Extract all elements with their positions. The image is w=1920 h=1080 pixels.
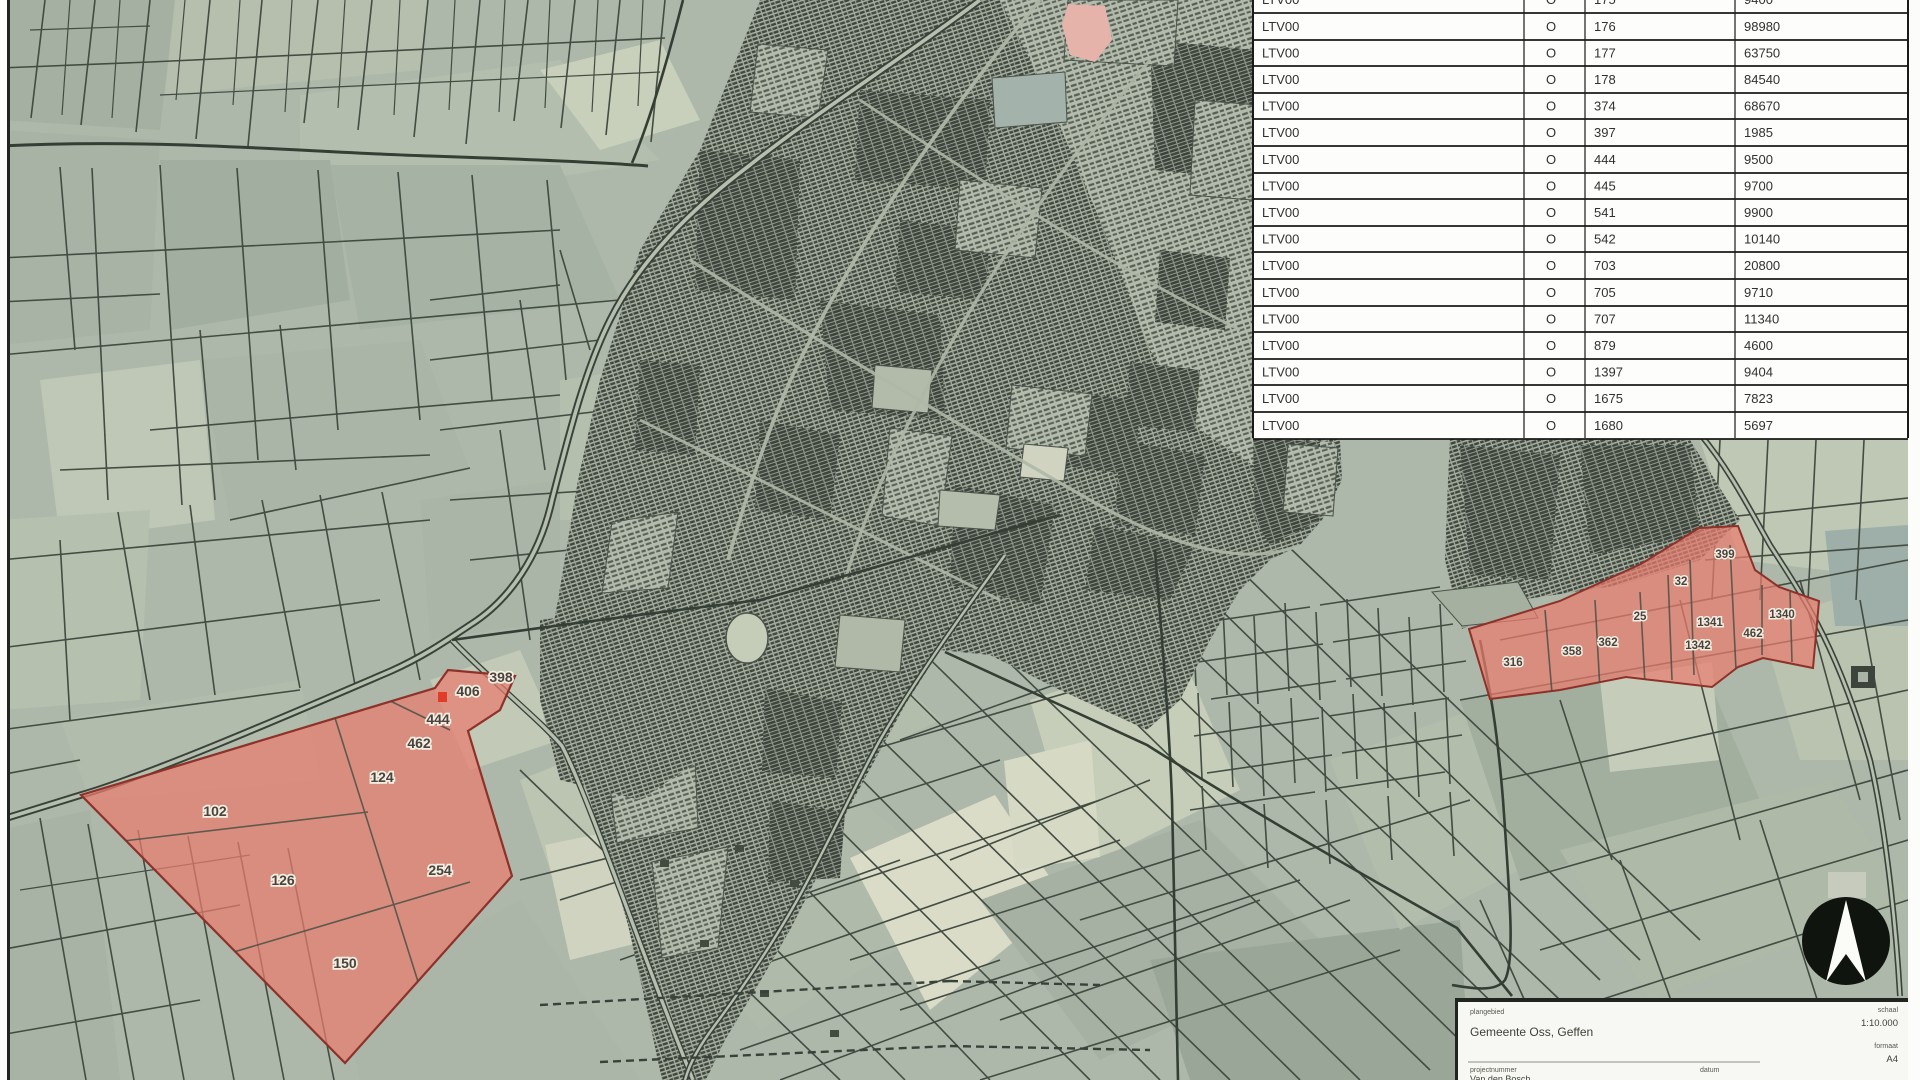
svg-text:LTV00: LTV00 [1262, 365, 1299, 380]
svg-text:LTV00: LTV00 [1262, 152, 1299, 167]
svg-text:462: 462 [1743, 628, 1762, 640]
svg-text:20800: 20800 [1744, 258, 1780, 273]
svg-text:O: O [1546, 285, 1556, 300]
svg-text:LTV00: LTV00 [1262, 125, 1299, 140]
svg-text:O: O [1546, 152, 1556, 167]
svg-text:O: O [1546, 178, 1556, 193]
svg-text:254: 254 [428, 862, 452, 878]
svg-text:7823: 7823 [1744, 391, 1773, 406]
svg-text:LTV00: LTV00 [1262, 232, 1299, 247]
svg-text:1680: 1680 [1594, 418, 1623, 433]
svg-text:362: 362 [1598, 637, 1617, 649]
svg-text:9700: 9700 [1744, 178, 1773, 193]
svg-text:LTV00: LTV00 [1262, 72, 1299, 87]
svg-text:175: 175 [1594, 0, 1616, 7]
svg-text:O: O [1546, 418, 1556, 433]
svg-text:O: O [1546, 99, 1556, 114]
svg-text:98980: 98980 [1744, 19, 1780, 34]
svg-text:358: 358 [1562, 646, 1582, 658]
svg-text:A4: A4 [1886, 1054, 1898, 1065]
svg-text:O: O [1546, 391, 1556, 406]
svg-text:9400: 9400 [1744, 0, 1773, 7]
svg-text:316: 316 [1503, 657, 1522, 669]
svg-text:374: 374 [1594, 99, 1616, 114]
svg-text:705: 705 [1594, 285, 1616, 300]
svg-text:462: 462 [407, 735, 431, 751]
svg-text:O: O [1546, 365, 1556, 380]
svg-text:LTV00: LTV00 [1262, 99, 1299, 114]
svg-text:5697: 5697 [1744, 418, 1773, 433]
svg-text:11340: 11340 [1744, 311, 1779, 326]
svg-text:399: 399 [1715, 549, 1734, 561]
svg-text:9404: 9404 [1744, 365, 1773, 380]
svg-text:9900: 9900 [1744, 205, 1773, 220]
svg-text:707: 707 [1594, 311, 1616, 326]
svg-text:1675: 1675 [1594, 391, 1623, 406]
svg-text:397: 397 [1594, 125, 1616, 140]
svg-text:O: O [1546, 311, 1556, 326]
svg-text:25: 25 [1634, 611, 1647, 623]
svg-text:703: 703 [1594, 258, 1616, 273]
svg-text:plangebied: plangebied [1470, 1009, 1504, 1016]
svg-text:O: O [1546, 19, 1556, 34]
svg-text:126: 126 [271, 872, 295, 888]
svg-text:1340: 1340 [1769, 609, 1795, 621]
svg-text:444: 444 [426, 711, 450, 727]
svg-text:LTV00: LTV00 [1262, 311, 1299, 326]
svg-text:178: 178 [1594, 72, 1616, 87]
svg-text:445: 445 [1594, 178, 1616, 193]
svg-text:LTV00: LTV00 [1262, 178, 1299, 193]
svg-text:542: 542 [1594, 232, 1616, 247]
svg-text:9500: 9500 [1744, 152, 1773, 167]
svg-text:LTV00: LTV00 [1262, 258, 1299, 273]
svg-text:O: O [1546, 125, 1556, 140]
svg-text:406: 406 [456, 683, 480, 699]
svg-text:projectnummer: projectnummer [1470, 1067, 1517, 1074]
svg-text:102: 102 [203, 803, 227, 819]
svg-text:datum: datum [1700, 1067, 1720, 1074]
svg-text:LTV00: LTV00 [1262, 418, 1299, 433]
svg-text:444: 444 [1594, 152, 1616, 167]
svg-text:LTV00: LTV00 [1262, 205, 1299, 220]
svg-text:879: 879 [1594, 338, 1616, 353]
svg-text:O: O [1546, 258, 1556, 273]
svg-text:68670: 68670 [1744, 99, 1780, 114]
svg-text:32: 32 [1675, 576, 1688, 588]
svg-text:formaat: formaat [1874, 1043, 1898, 1050]
svg-text:schaal: schaal [1878, 1007, 1899, 1014]
svg-text:10140: 10140 [1744, 232, 1780, 247]
svg-text:O: O [1546, 232, 1556, 247]
svg-text:63750: 63750 [1744, 45, 1780, 60]
svg-text:LTV00: LTV00 [1262, 391, 1299, 406]
svg-text:177: 177 [1594, 45, 1616, 60]
svg-text:4600: 4600 [1744, 338, 1773, 353]
svg-text:LTV00: LTV00 [1262, 45, 1299, 60]
svg-text:O: O [1546, 45, 1556, 60]
svg-text:LTV00: LTV00 [1262, 285, 1299, 300]
svg-text:1:10.000: 1:10.000 [1861, 1018, 1898, 1029]
svg-text:1397: 1397 [1594, 365, 1623, 380]
svg-text:9710: 9710 [1744, 285, 1773, 300]
svg-text:Gemeente Oss, Geffen: Gemeente Oss, Geffen [1470, 1025, 1593, 1039]
svg-text:O: O [1546, 72, 1556, 87]
svg-text:176: 176 [1594, 19, 1616, 34]
svg-text:LTV00: LTV00 [1262, 19, 1299, 34]
svg-text:541: 541 [1594, 205, 1616, 220]
svg-text:124: 124 [370, 769, 394, 785]
svg-text:LTV00: LTV00 [1262, 338, 1299, 353]
svg-text:1341: 1341 [1697, 617, 1723, 629]
svg-text:O: O [1546, 338, 1556, 353]
svg-text:Van den Bosch: Van den Bosch [1470, 1074, 1530, 1080]
svg-text:LTV00: LTV00 [1262, 0, 1299, 7]
svg-text:1342: 1342 [1685, 640, 1711, 652]
svg-text:O: O [1546, 205, 1556, 220]
svg-text:O: O [1546, 0, 1556, 7]
svg-text:1985: 1985 [1744, 125, 1773, 140]
svg-text:84540: 84540 [1744, 72, 1780, 87]
svg-text:398: 398 [489, 669, 513, 685]
svg-text:150: 150 [333, 955, 357, 971]
